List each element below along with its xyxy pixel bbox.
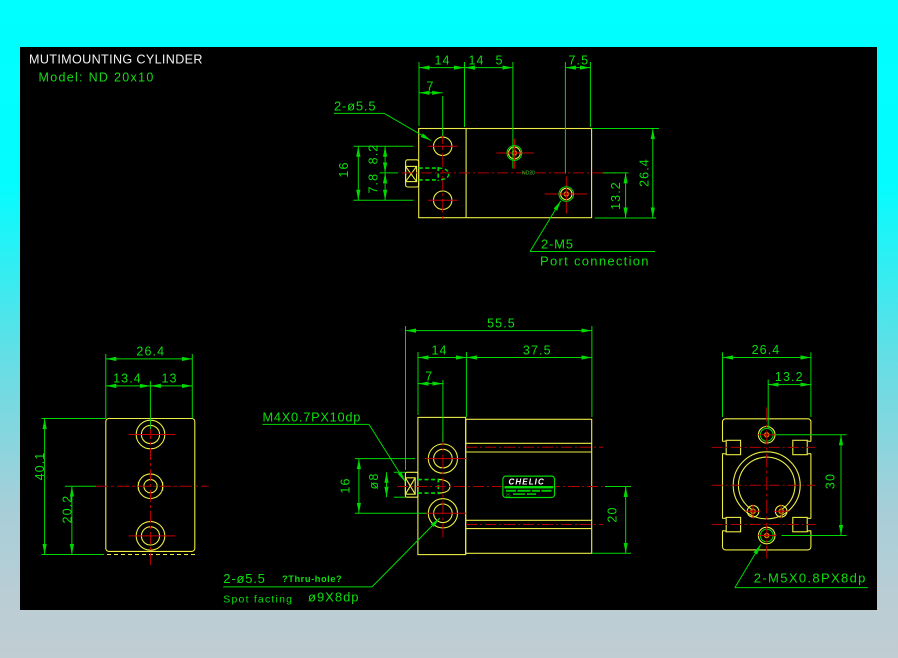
svg-text:55.5: 55.5 <box>487 316 516 330</box>
svg-text:7: 7 <box>427 80 435 94</box>
svg-text:CHELIC: CHELIC <box>509 477 545 486</box>
svg-text:14: 14 <box>435 54 451 68</box>
svg-text:13.2: 13.2 <box>609 181 623 210</box>
svg-text:Model: ND 20x10: Model: ND 20x10 <box>39 71 155 85</box>
svg-text:14: 14 <box>469 54 485 68</box>
svg-text:2-ø5.5: 2-ø5.5 <box>223 571 265 586</box>
svg-text:20.2: 20.2 <box>61 495 75 524</box>
svg-text:14: 14 <box>431 344 447 358</box>
svg-text:Port connection: Port connection <box>540 254 650 269</box>
svg-text:2-ø5.5: 2-ø5.5 <box>334 99 376 114</box>
svg-text:13.4: 13.4 <box>113 371 142 385</box>
svg-text:26.4: 26.4 <box>136 344 165 358</box>
svg-text:40.1: 40.1 <box>33 452 47 481</box>
svg-text:26.4: 26.4 <box>752 343 781 357</box>
svg-text:26.4: 26.4 <box>638 158 652 187</box>
svg-text:2-M5: 2-M5 <box>541 237 574 252</box>
svg-text:M4X0.7PX10dp: M4X0.7PX10dp <box>263 410 362 425</box>
svg-text:5: 5 <box>496 54 504 68</box>
svg-text:25: 25 <box>506 493 512 498</box>
svg-text:13.2: 13.2 <box>775 370 804 384</box>
svg-text:ND20: ND20 <box>522 171 535 177</box>
svg-text:37.5: 37.5 <box>523 344 552 358</box>
svg-text:7.8: 7.8 <box>367 173 381 194</box>
svg-text:8.2: 8.2 <box>367 144 381 165</box>
svg-text:ø8: ø8 <box>367 473 381 490</box>
svg-text:16: 16 <box>337 161 351 177</box>
svg-text:ø9X8dp: ø9X8dp <box>308 590 360 605</box>
svg-text:Spot facting: Spot facting <box>223 594 293 606</box>
svg-text:16: 16 <box>339 477 353 493</box>
svg-text:13: 13 <box>161 371 177 385</box>
svg-text:7: 7 <box>425 370 433 384</box>
svg-text:30: 30 <box>824 473 838 489</box>
svg-text:2-M5X0.8PX8dp: 2-M5X0.8PX8dp <box>754 571 867 586</box>
svg-text:20: 20 <box>606 506 620 522</box>
svg-text:7.5: 7.5 <box>569 54 590 68</box>
svg-text:?Thru-hole?: ?Thru-hole? <box>282 574 342 584</box>
svg-text:MUTIMOUNTING CYLINDER: MUTIMOUNTING CYLINDER <box>29 53 203 67</box>
